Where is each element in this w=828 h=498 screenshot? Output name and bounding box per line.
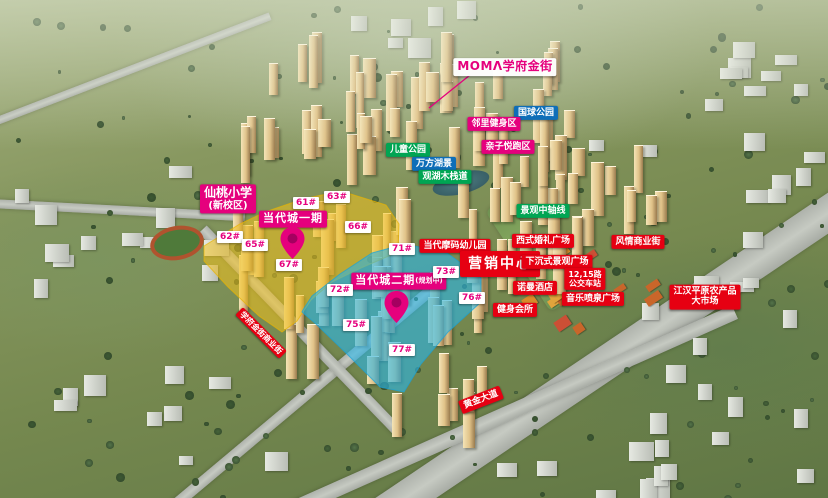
project-title-label: MOMΛ学府金街 — [453, 58, 556, 76]
neighbor-fitness-label: 邻里健身区 — [467, 117, 520, 131]
building-62-chip: 62# — [217, 231, 243, 243]
parent-run-label: 亲子悦跑区 — [481, 140, 534, 154]
phase1-location-pin-icon — [280, 227, 305, 260]
gym-label: 健身会所 — [493, 303, 537, 317]
phase1-label: 当代城一期 — [259, 211, 327, 228]
landscape-axis-label: 景观中轴线 — [516, 204, 569, 218]
bus-station-text: 公交车站 — [568, 279, 601, 288]
building-71-chip: 71# — [389, 243, 415, 255]
building-75-chip: 75# — [343, 319, 369, 331]
hotel-label: 诺曼酒店 — [513, 281, 557, 295]
market-suffix: 大市场 — [673, 297, 736, 307]
ball-park-label: 国球公园 — [514, 106, 558, 120]
building-66-chip: 66# — [345, 221, 371, 233]
fountain-plaza-label: 音乐喷泉广场 — [562, 292, 624, 306]
building-72-chip: 72# — [327, 284, 353, 296]
biz-street-label: 风情商业街 — [611, 235, 664, 249]
building-76-chip: 76# — [459, 292, 485, 304]
market-label: 江汉平原农产品 大市场 — [669, 285, 740, 310]
kids-park-label: 儿童公园 — [386, 143, 430, 157]
school-label: 仙桃小学 (新校区) — [200, 184, 256, 213]
bus-routes: 12,15路 — [568, 270, 601, 279]
market-name: 江汉平原农产品 — [673, 287, 736, 297]
building-77-chip: 77# — [389, 344, 415, 356]
school-name: 仙桃小学 — [204, 186, 252, 200]
building-63-chip: 63# — [324, 191, 350, 203]
school-campus: (新校区) — [204, 200, 252, 212]
moma-leader-line — [429, 75, 470, 108]
phase2-location-pin-icon — [384, 291, 409, 324]
building-67-chip: 67# — [276, 259, 302, 271]
aerial-masterplan-map: MOMΛ学府金街 儿童公园 万方湖景 观湖木栈道 国球公园 邻里健身区 亲子悦跑… — [0, 0, 828, 498]
wedding-plaza-label: 西式婚礼广场 — [512, 234, 574, 248]
boardwalk-label: 观湖木栈道 — [418, 170, 471, 184]
building-65-chip: 65# — [242, 239, 268, 251]
bus-station-label: 12,15路 公交车站 — [564, 268, 605, 290]
building-61-chip: 61# — [293, 197, 319, 209]
phase2-name: 当代城二期 — [355, 274, 415, 287]
building-73-chip: 73# — [433, 266, 459, 278]
